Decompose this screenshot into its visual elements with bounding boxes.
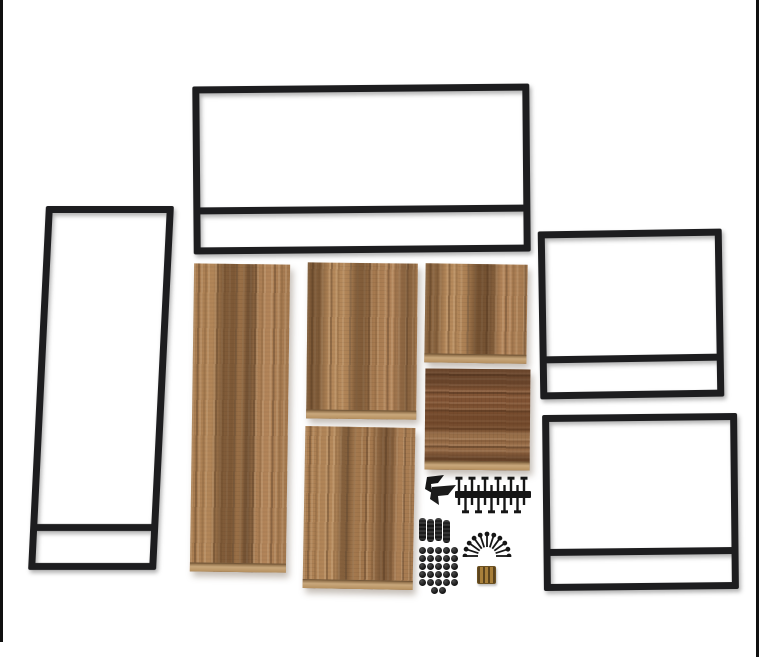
cap-nut (427, 571, 434, 578)
cap-nut (419, 547, 426, 554)
frame-left-tall (28, 206, 174, 570)
cap-nut (451, 571, 458, 578)
panel-right-lower (425, 369, 531, 471)
panel-right-lower-edge (425, 461, 530, 471)
cap-nut (435, 555, 442, 562)
dowel-pins (419, 518, 452, 543)
panel-mid-upper-edge (306, 409, 416, 419)
cap-nut (419, 555, 426, 562)
frame-top-wide (192, 84, 530, 255)
cap-nut (435, 579, 442, 586)
panel-large-left (190, 263, 290, 572)
panel-mid-lower-edge (303, 579, 413, 590)
cap-nut (427, 579, 434, 586)
cap-nut (435, 571, 442, 578)
image-border-left (0, 0, 3, 642)
cap-nut (443, 547, 450, 554)
cap-nut (451, 579, 458, 586)
dowel-pin (443, 520, 450, 543)
cap-nut (443, 579, 450, 586)
cap-nut (419, 579, 426, 586)
cap-nut (435, 547, 442, 554)
cap-nut (451, 555, 458, 562)
dowel-pin (427, 519, 434, 542)
cap-nut (443, 563, 450, 570)
panel-right-upper-edge (424, 353, 526, 363)
cap-nut (443, 555, 450, 562)
cap-nut (451, 563, 458, 570)
cap-nut (431, 587, 438, 594)
cap-nut (427, 555, 434, 562)
cap-nut (427, 563, 434, 570)
frame-right-lower (542, 413, 739, 591)
frame-right-lower-crossbar (548, 547, 733, 556)
cap-nuts-grid (419, 547, 459, 595)
cap-nut (451, 547, 458, 554)
panel-large-left-edge (190, 562, 286, 572)
frame-left-tall-crossbar (35, 524, 153, 531)
panel-right-upper (424, 263, 527, 363)
cap-nut (435, 563, 442, 570)
cap-nut (427, 547, 434, 554)
cap-nut (439, 587, 446, 594)
dowel-pin (419, 518, 426, 541)
panel-mid-lower (303, 426, 416, 590)
screw-fan (461, 527, 513, 557)
frame-right-upper-crossbar (545, 354, 719, 364)
dowel-pin (435, 518, 442, 541)
frame-top-wide-crossbar (198, 205, 525, 215)
cap-nut (419, 571, 426, 578)
panel-mid-upper (306, 262, 418, 419)
cap-nut (419, 563, 426, 570)
frame-right-upper (538, 229, 725, 400)
cap-nut (443, 571, 450, 578)
cam-bolts-row (454, 475, 532, 515)
brass-inserts (477, 566, 496, 584)
product-photo-furniture-kit (0, 0, 759, 657)
corner-brackets (420, 474, 458, 506)
